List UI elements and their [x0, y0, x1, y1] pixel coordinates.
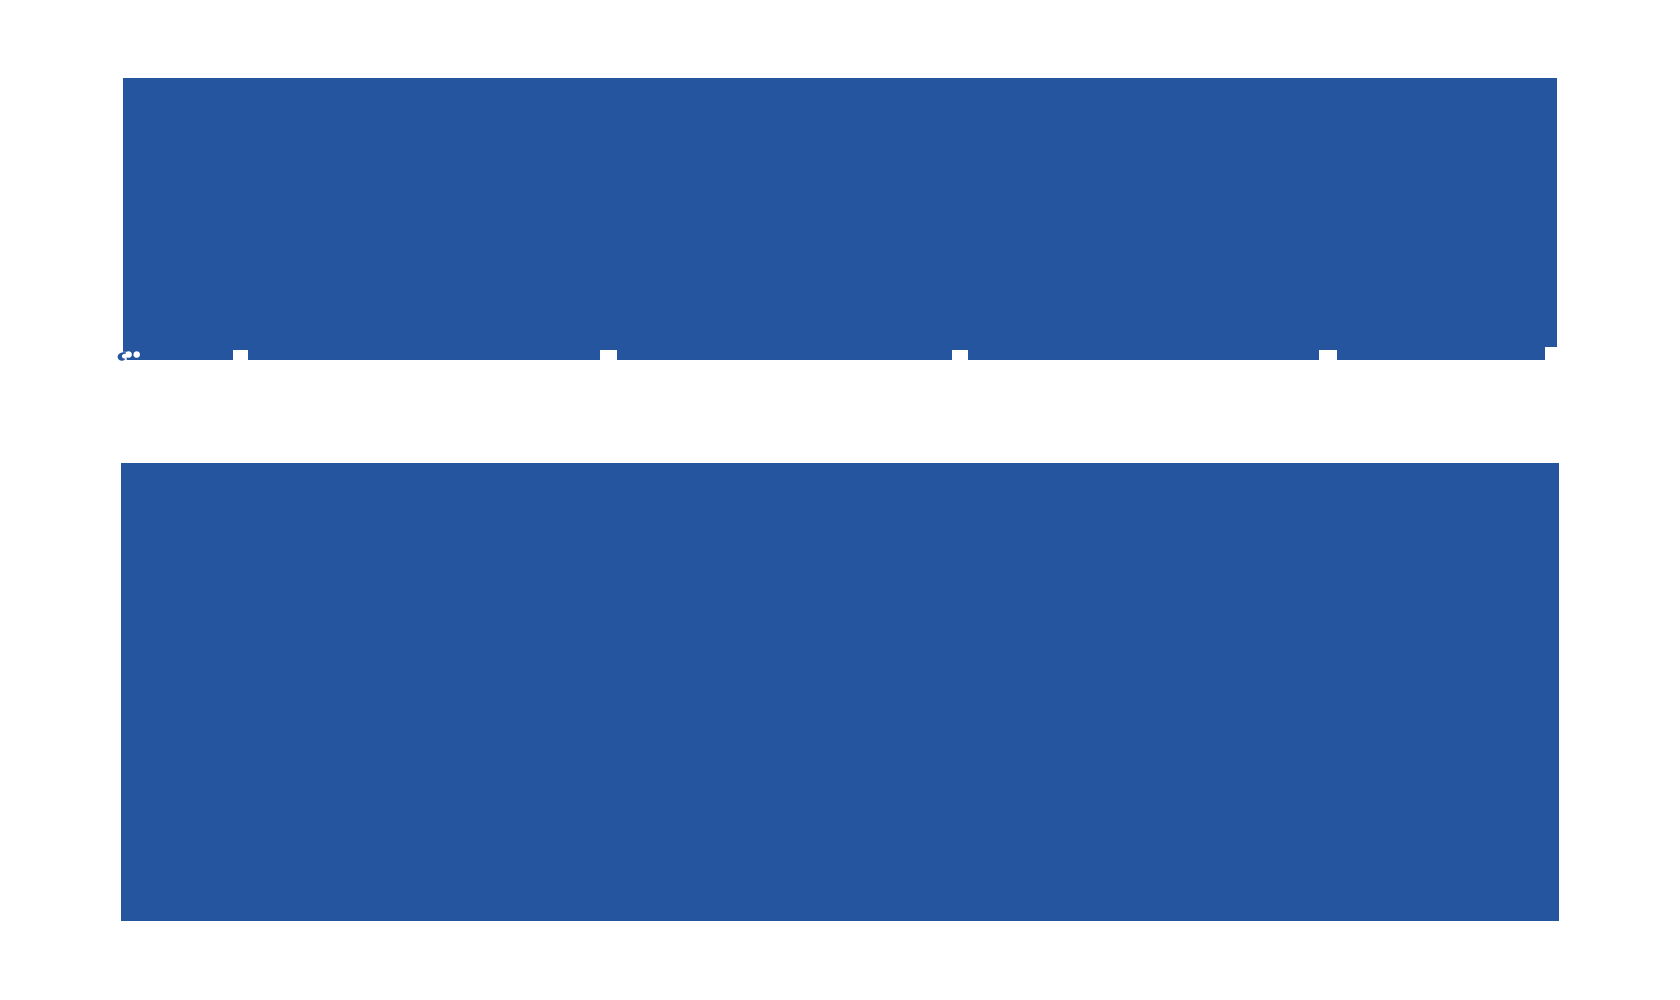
bottom-edge-notch: [233, 350, 248, 360]
bottom-edge-notch: [600, 350, 617, 360]
content-block-top: [123, 78, 1557, 360]
clipped-glyph-icon: [114, 336, 150, 363]
content-block-bottom: [121, 463, 1559, 921]
bottom-edge-notch: [952, 350, 968, 360]
page-canvas: [0, 0, 1680, 1000]
corner-step-notch: [1545, 347, 1557, 360]
bottom-edge-notch: [1319, 350, 1337, 360]
